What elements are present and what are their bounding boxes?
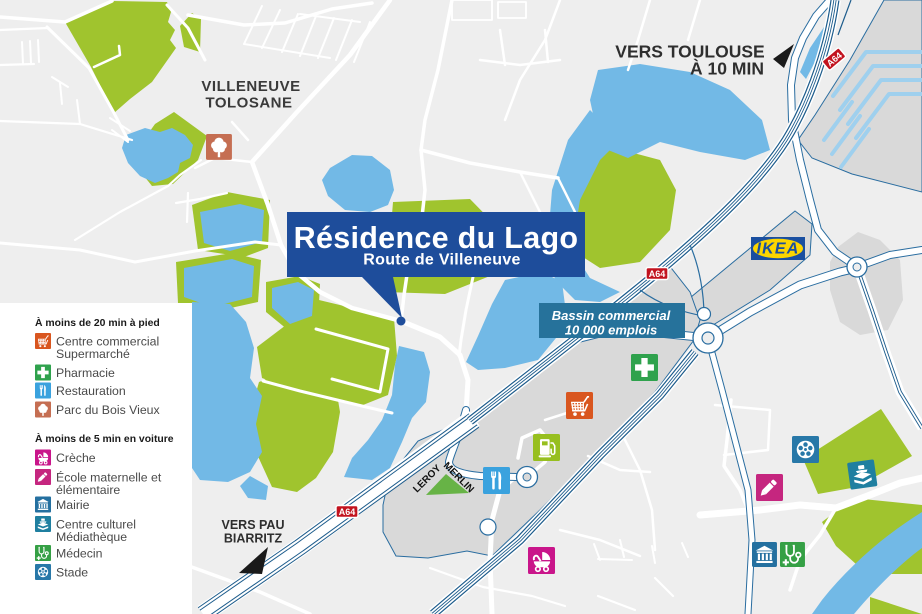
svg-text:IKEA: IKEA [756,241,799,258]
svg-text:Route de Villeneuve: Route de Villeneuve [363,252,520,269]
svg-text:Supermarché: Supermarché [56,347,130,361]
svg-text:Médiathèque: Médiathèque [56,530,127,544]
svg-text:Bassin commercial: Bassin commercial [552,308,671,323]
svg-text:Restauration: Restauration [56,384,126,398]
svg-text:Crèche: Crèche [56,451,96,465]
svg-text:À moins de 20 min à pied: À moins de 20 min à pied [35,316,160,329]
svg-text:Résidence du Lago: Résidence du Lago [294,221,579,255]
svg-text:Stade: Stade [56,566,88,580]
svg-text:Pharmacie: Pharmacie [56,366,115,380]
svg-text:Parc du Bois Vieux: Parc du Bois Vieux [56,403,161,417]
svg-text:A64: A64 [339,507,356,517]
svg-text:VERS PAU: VERS PAU [222,518,285,532]
svg-text:BIARRITZ: BIARRITZ [224,532,283,546]
svg-text:TOLOSANE: TOLOSANE [205,95,292,112]
svg-text:10 000 emplois: 10 000 emplois [565,323,658,338]
svg-text:VILLENEUVE: VILLENEUVE [201,78,300,95]
svg-text:Mairie: Mairie [56,498,90,512]
svg-text:À 10 MIN: À 10 MIN [690,58,764,79]
svg-text:élémentaire: élémentaire [56,483,120,497]
svg-text:A64: A64 [649,269,666,279]
svg-text:À moins de 5 min en voiture: À moins de 5 min en voiture [35,432,174,445]
svg-text:Médecin: Médecin [56,547,103,561]
